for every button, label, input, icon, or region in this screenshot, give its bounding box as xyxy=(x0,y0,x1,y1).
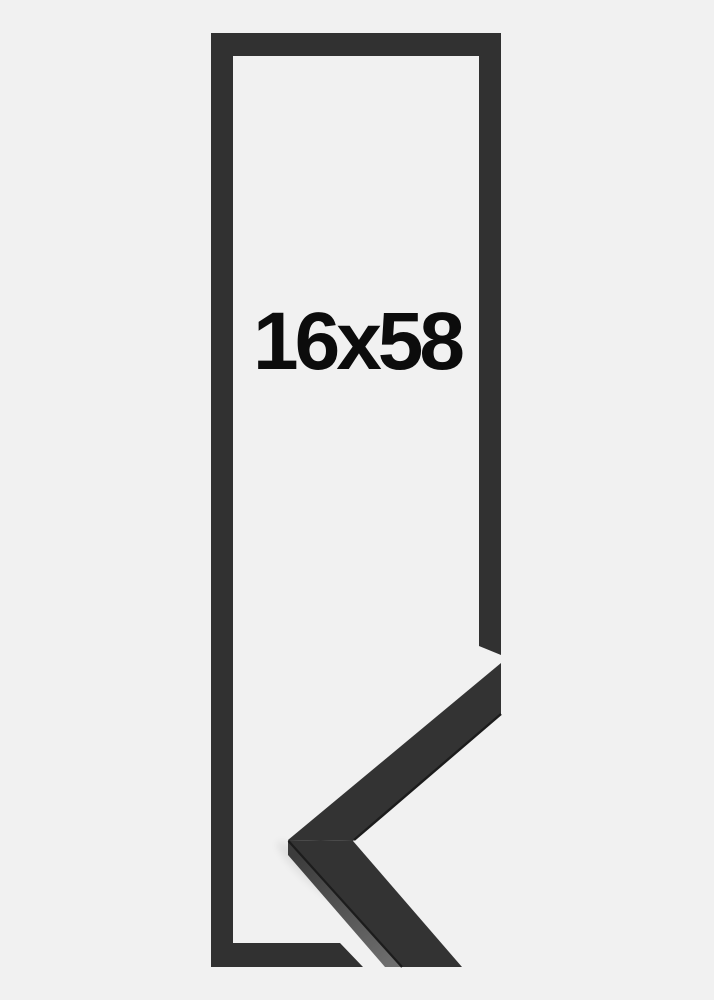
frame-product-image: 16x58 xyxy=(0,0,714,1000)
size-label: 16x58 xyxy=(253,301,461,383)
frame-outline-left-bar xyxy=(211,33,233,967)
frame-outline-right-bar xyxy=(479,33,501,655)
frame-graphic-canvas xyxy=(0,0,714,1000)
frame-outline-bottom-bar xyxy=(211,943,363,967)
corner-sample-upper-arm-face xyxy=(288,663,501,841)
frame-outline-top-bar xyxy=(211,33,501,56)
